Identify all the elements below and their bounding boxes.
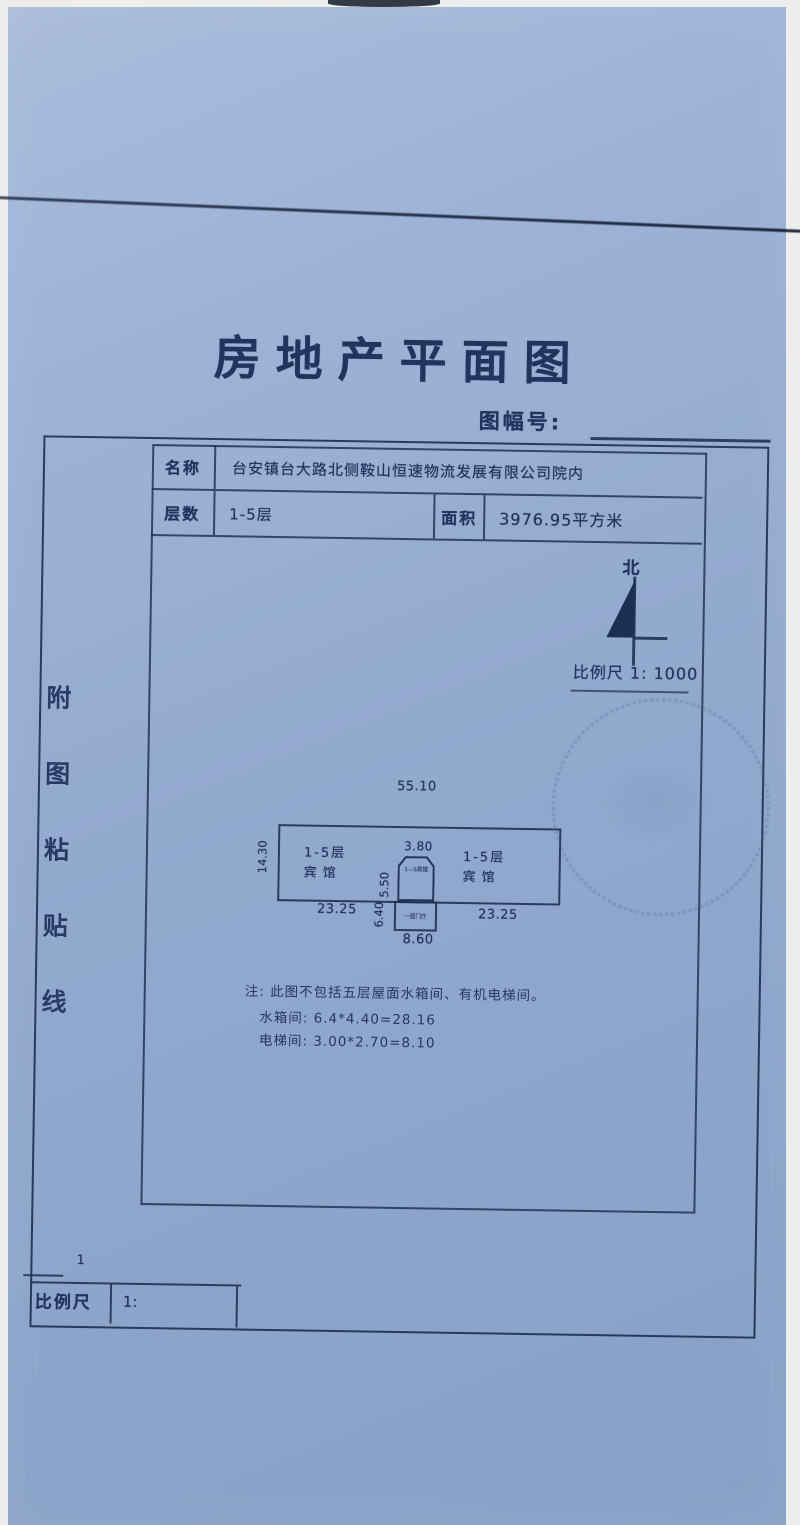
footer-scale-value: 1: (123, 1293, 138, 1311)
page-edge-shadow (328, 0, 440, 7)
paste-line-char: 贴 (43, 906, 69, 942)
dim-building-depth: 14.30 (255, 840, 270, 873)
dim-wing-right: 23.25 (478, 907, 518, 923)
paste-line-char: 图 (45, 754, 71, 790)
document-photo: 房地产平面图 图幅号: 附 图 粘 贴 线 名称 台安镇台大路北侧鞍山恒速物流发… (0, 0, 800, 1525)
entry-bay-shape (397, 856, 435, 902)
dim-total-width: 55.10 (397, 779, 437, 795)
sheet-number-label: 图幅号: (479, 405, 563, 436)
room-label-left: 1-5层 宾馆 (303, 843, 346, 884)
dim-porch-width: 8.60 (402, 932, 433, 947)
room-right-use: 宾馆 (462, 868, 505, 889)
sheet-number-blank-line (590, 437, 770, 442)
paste-line-char: 线 (41, 982, 67, 1018)
entry-bay-label: 1—5宾馆 (401, 865, 432, 873)
paste-line-char: 粘 (44, 830, 70, 866)
page-mark: 1 (76, 1253, 85, 1268)
dim-entry-width: 3.80 (404, 839, 433, 853)
north-arrow-crossbar (633, 637, 667, 640)
north-arrow-triangle-icon (606, 579, 635, 637)
dim-entry-depth: 5.50 (377, 872, 391, 898)
paste-line-caption: 附 图 粘 贴 线 (41, 678, 71, 1018)
note-line-3: 电梯间: 3.00*2.70=8.10 (259, 1029, 436, 1052)
dim-wing-left: 23.25 (317, 902, 357, 918)
footer-scale-label: 比例尺 (35, 1287, 92, 1313)
table-floors-label: 层数 (151, 490, 216, 537)
table-area-label: 面积 (433, 494, 486, 541)
room-right-floors: 1-5层 (463, 848, 506, 869)
table-name-value: 台安镇台大路北侧鞍山恒速物流发展有限公司院内 (216, 445, 704, 499)
map-scale-note: 比例尺 1: 1000 (573, 659, 699, 685)
room-label-right: 1-5层 宾馆 (462, 848, 505, 889)
page-title: 房地产平面图 (213, 319, 634, 395)
paper-sheet: 房地产平面图 图幅号: 附 图 粘 贴 线 名称 台安镇台大路北侧鞍山恒速物流发… (8, 7, 786, 1525)
porch-outline: 一层门厅 (394, 901, 437, 932)
north-label: 北 (622, 553, 639, 578)
room-left-floors: 1-5层 (304, 843, 347, 864)
dim-porch-depth: 6.40 (372, 902, 386, 928)
table-area-value: 3976.95平方米 (485, 495, 703, 544)
room-left-use: 宾馆 (303, 863, 346, 884)
document-content: 房地产平面图 图幅号: 附 图 粘 贴 线 名称 台安镇台大路北侧鞍山恒速物流发… (0, 0, 800, 1525)
paste-line-char: 附 (46, 678, 72, 714)
porch-label: 一层门厅 (404, 912, 426, 920)
note-line-2: 水箱间: 6.4*4.40=28.16 (259, 1006, 436, 1029)
table-name-label: 名称 (152, 444, 217, 491)
table-floors-value: 1-5层 (215, 491, 434, 540)
entry-bay-outline: 1—5宾馆 (397, 856, 435, 902)
